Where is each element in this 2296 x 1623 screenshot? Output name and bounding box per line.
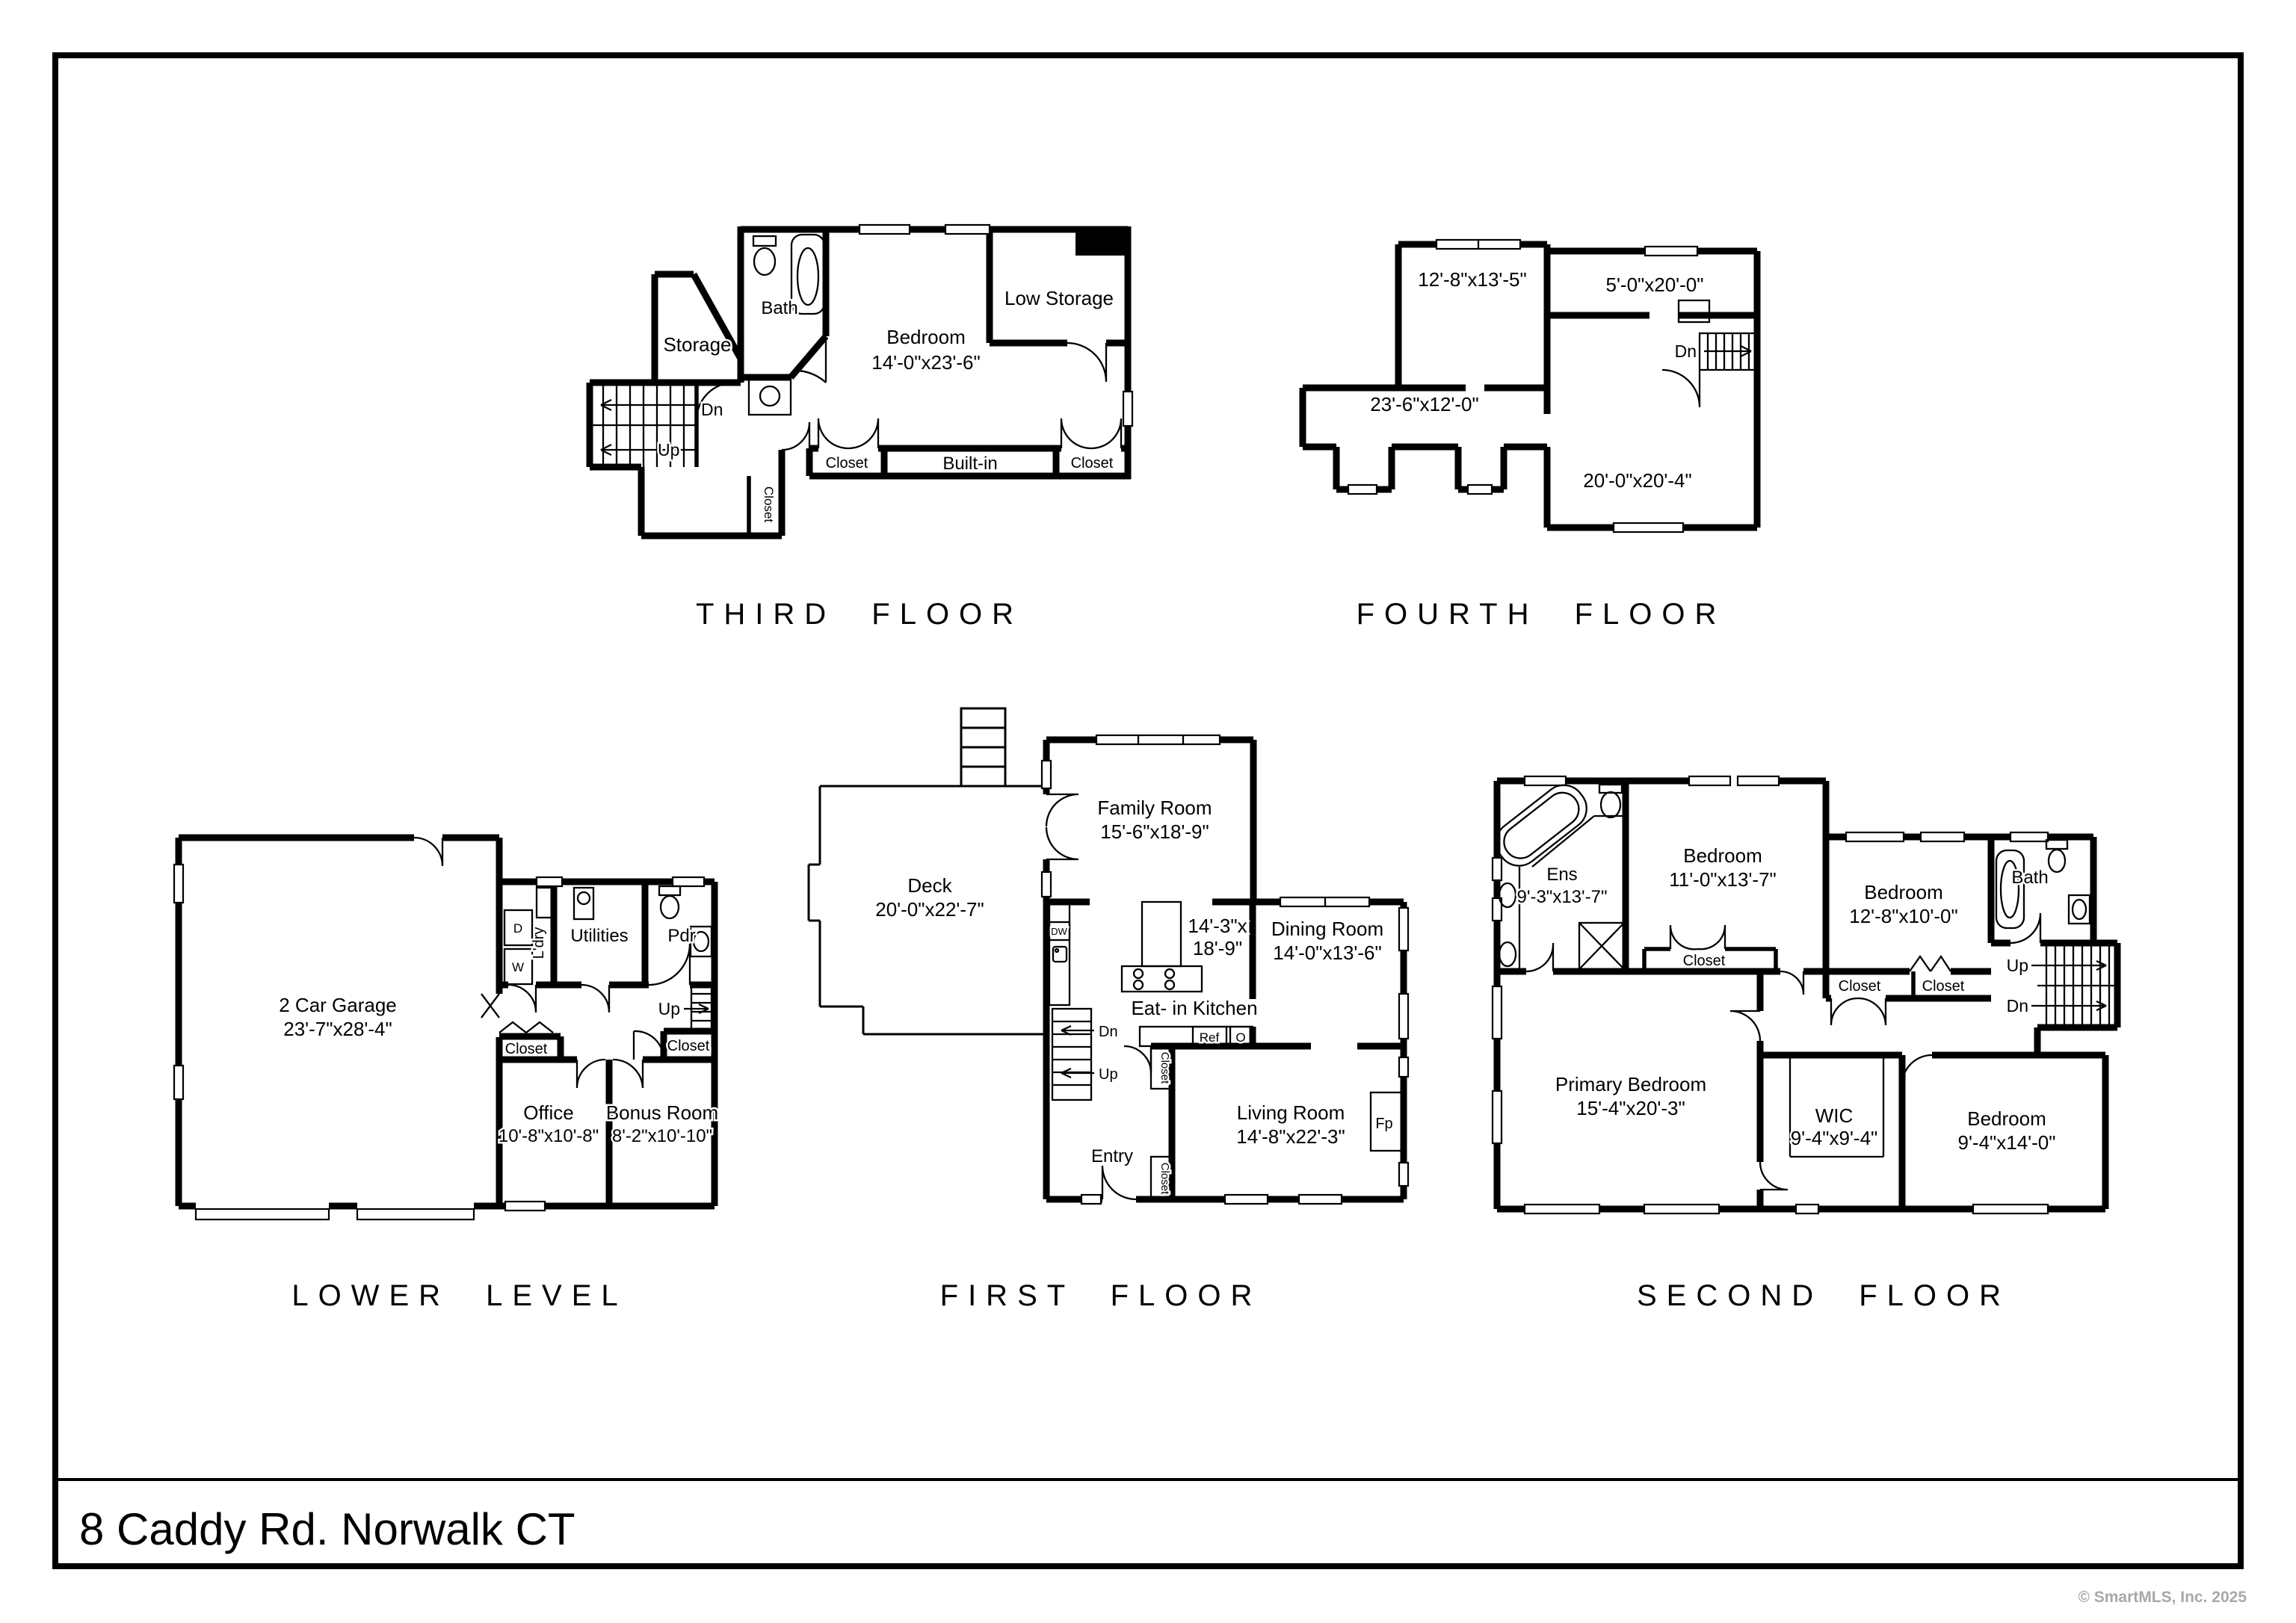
address-title: 8 Caddy Rd. Norwalk CT — [79, 1503, 575, 1555]
label-d: D — [513, 921, 522, 936]
cabinet-icon — [537, 888, 552, 918]
room-dims-bedroom3: 9'-4"x14'-0" — [1957, 1131, 2055, 1154]
room-label-bedroom: Bedroom — [886, 326, 966, 348]
room-label-kitchen: Eat- in Kitchen — [1131, 997, 1257, 1019]
lower-level-title: LOWER LEVEL — [291, 1279, 627, 1313]
room-dims-office: 10'-8"x10'-8" — [499, 1126, 599, 1146]
first-floor-title: FIRST FLOOR — [940, 1279, 1262, 1313]
room-label-pdr: Pdr — [667, 926, 695, 946]
room-label-utilities: Utilities — [570, 926, 628, 946]
label-closet2: Closet — [1839, 978, 1881, 995]
second-floor-plan: Ens 9'-3"x13'-7" Bedroom 11'-0"x13'-7" B… — [1487, 770, 2145, 1222]
room-label-family: Family Room — [1097, 797, 1212, 819]
room-label-bath: Bath — [2011, 868, 2048, 888]
label-closet1: Closet — [1683, 953, 1726, 969]
lower-level-plan: 2 Car Garage 23'-7"x28'-4" D W L'dry Uti… — [164, 814, 732, 1225]
label-closet3: Closet — [1922, 978, 1965, 995]
third-floor-title: THIRD FLOOR — [696, 598, 1023, 631]
label-dn: Dn — [1099, 1024, 1118, 1040]
label-dn: Dn — [2007, 996, 2028, 1015]
room-label-living: Living Room — [1237, 1101, 1345, 1124]
label-dw: DW — [1051, 926, 1067, 937]
label-closet-right: Closet — [1071, 455, 1114, 472]
sink-icon — [1499, 942, 1516, 966]
toilet-icon — [753, 236, 776, 246]
room-dims-ens: 9'-3"x13'-7" — [1517, 887, 1608, 907]
room-label-ldry: L'dry — [531, 927, 547, 959]
walls — [179, 838, 715, 1206]
room-label-bedroom1: Bedroom — [1683, 844, 1762, 867]
room-label-bath: Bath — [761, 298, 797, 318]
room-dims-primary: 15'-4"x20'-3" — [1576, 1097, 1685, 1119]
second-floor-title: SECOND FLOOR — [1637, 1279, 2010, 1313]
room-dims-c: 23'-6"x12'-0" — [1370, 393, 1478, 415]
room-label-low-storage: Low Storage — [1004, 287, 1114, 309]
room-dims-kitchen-b: 18'-9" — [1193, 937, 1242, 959]
label-closet-a: Closet — [1158, 1052, 1171, 1084]
bath-fixtures — [749, 235, 824, 415]
room-label-storage: Storage — [663, 333, 731, 356]
room-dims-wic: 9'-4"x9'-4" — [1791, 1127, 1878, 1149]
windows — [174, 865, 704, 1219]
room-label-ens: Ens — [1546, 865, 1577, 885]
room-dims-garage: 23'-7"x28'-4" — [283, 1018, 392, 1040]
label-built-in: Built-in — [942, 454, 997, 474]
label-fp: Fp — [1375, 1116, 1392, 1132]
room-label-office: Office — [523, 1101, 573, 1124]
label-closet-b: Closet — [1158, 1163, 1171, 1195]
room-dims-d: 20'-0"x20'-4" — [1583, 469, 1691, 492]
walls — [590, 226, 1131, 536]
stairs-icon — [590, 383, 697, 467]
label-dn: Dn — [701, 400, 723, 419]
labels: 12'-8"x13'-5" 5'-0"x20'-0" 23'-6"x12'-0"… — [1370, 268, 1703, 492]
toilet-icon — [659, 886, 680, 895]
room-dims-living: 14'-8"x22'-3" — [1236, 1125, 1345, 1148]
label-up: Up — [658, 440, 679, 460]
label-up: Up — [1099, 1066, 1118, 1083]
bifold-door — [1910, 956, 1951, 971]
doors — [1662, 370, 1700, 407]
room-label-garage: 2 Car Garage — [279, 994, 397, 1016]
garage-door — [357, 1209, 474, 1219]
room-dims-bonus: 8'-2"x10'-10" — [612, 1126, 712, 1146]
room-dims-family: 15'-6"x18'-9" — [1100, 820, 1209, 843]
room-dims-bedroom2: 12'-8"x10'-0" — [1849, 905, 1957, 927]
labels: Deck 20'-0"x22'-7" Family Room 15'-6"x18… — [875, 797, 1392, 1195]
stairs-icon — [1052, 1009, 1094, 1100]
labels: Bath Storage Bedroom 14'-0"x23'-6" Low S… — [658, 287, 1114, 522]
deck-outline — [809, 708, 1046, 1034]
label-up: Up — [658, 999, 680, 1018]
room-label-bedroom3: Bedroom — [1967, 1107, 2046, 1130]
room-label-bedroom2: Bedroom — [1864, 881, 1943, 903]
label-closet-left: Closet — [505, 1041, 548, 1057]
third-floor-plan: Bath Storage Bedroom 14'-0"x23'-6" Low S… — [583, 217, 1136, 560]
room-dims-dining: 14'-0"x13'-6" — [1273, 942, 1381, 964]
room-dims-bedroom1: 11'-0"x13'-7" — [1669, 868, 1777, 891]
room-label-dining: Dining Room — [1271, 918, 1383, 940]
copyright-text: © SmartMLS, Inc. 2025 — [2078, 1589, 2247, 1607]
bifold-door — [481, 994, 499, 1018]
first-floor-plan: Deck 20'-0"x22'-7" Family Room 15'-6"x18… — [807, 695, 1435, 1255]
room-label-wic: WIC — [1815, 1104, 1854, 1127]
label-closet-right: Closet — [667, 1038, 710, 1054]
fourth-floor-plan: 12'-8"x13'-5" 5'-0"x20'-0" 23'-6"x12'-0"… — [1300, 217, 1779, 553]
garage-door — [196, 1209, 329, 1219]
label-ref: Ref — [1200, 1030, 1220, 1045]
room-dims-deck: 20'-0"x22'-7" — [875, 898, 984, 921]
floor-plan-sheet: 8 Caddy Rd. Norwalk CT © SmartMLS, Inc. … — [0, 0, 2296, 1623]
label-closet-hall: Closet — [762, 486, 776, 522]
label-w: W — [512, 960, 524, 974]
label-entry: Entry — [1091, 1146, 1133, 1166]
room-label-bonus: Bonus Room — [606, 1101, 718, 1124]
room-dims-a: 12'-8"x13'-5" — [1418, 268, 1526, 291]
title-bar-divider — [58, 1478, 2238, 1481]
sink-icon — [749, 377, 791, 415]
stairs-icon — [684, 985, 712, 1031]
bifold-door — [499, 1022, 553, 1033]
label-oven: O — [1235, 1030, 1245, 1045]
toilet-icon — [2046, 840, 2067, 849]
island-icon — [1142, 902, 1181, 966]
room-dims-kitchen-a: 14'-3"x — [1188, 915, 1247, 937]
room-label-deck: Deck — [907, 874, 952, 897]
sink-icon — [1499, 883, 1516, 907]
chimney-block — [1076, 226, 1131, 256]
fourth-floor-title: FOURTH FLOOR — [1357, 598, 1726, 631]
label-dn: Dn — [1675, 341, 1697, 361]
stairs-icon — [2031, 943, 2117, 1027]
room-label-primary: Primary Bedroom — [1555, 1073, 1706, 1095]
label-up: Up — [2007, 956, 2028, 975]
room-dims-bedroom: 14'-0"x23'-6" — [871, 351, 980, 374]
room-dims-b: 5'-0"x20'-0" — [1605, 273, 1703, 296]
label-closet-left: Closet — [826, 455, 868, 472]
closet-box — [1679, 300, 1709, 322]
